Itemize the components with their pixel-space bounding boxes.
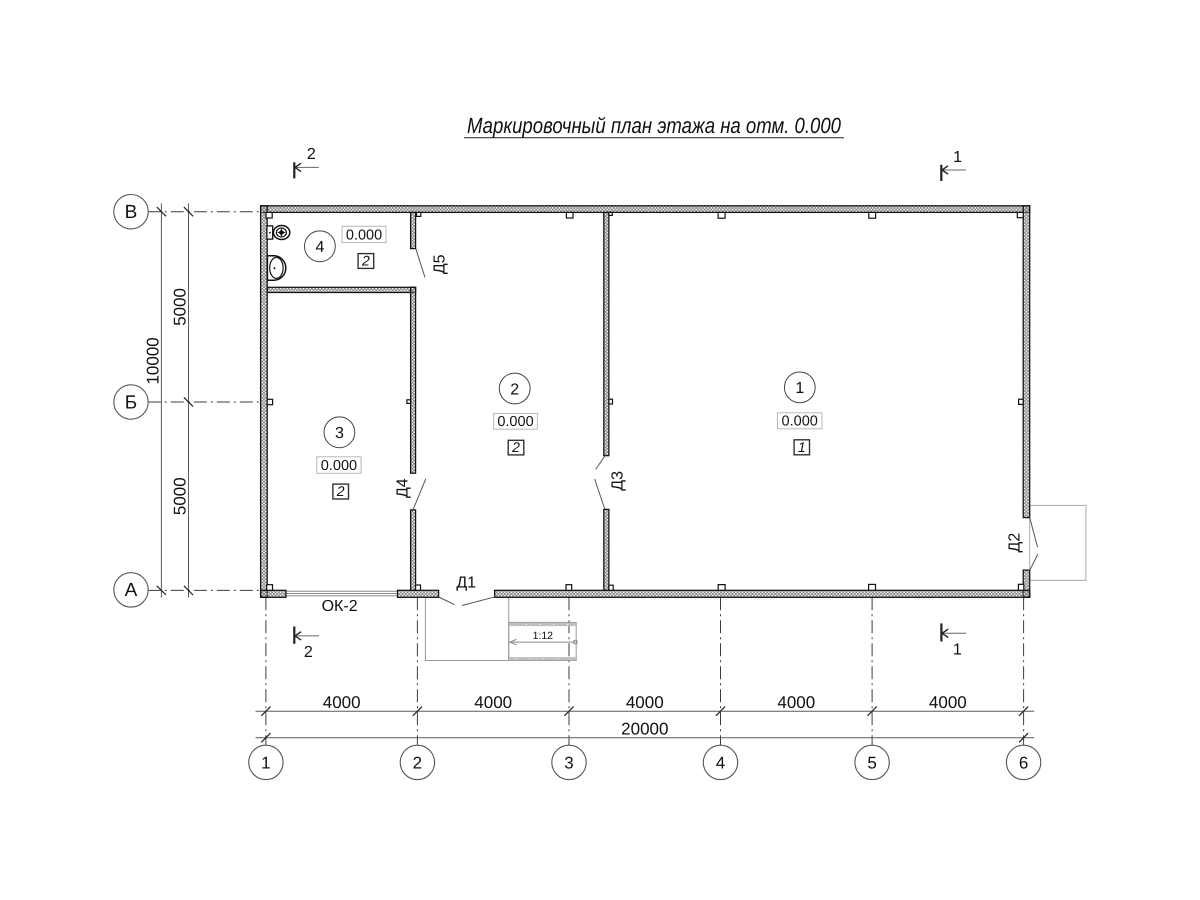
- svg-text:0.000: 0.000: [782, 414, 818, 430]
- svg-text:1: 1: [798, 439, 806, 455]
- svg-text:2: 2: [336, 483, 345, 499]
- svg-text:4000: 4000: [323, 693, 361, 712]
- svg-text:Д4: Д4: [395, 478, 412, 498]
- svg-text:2: 2: [511, 439, 520, 455]
- svg-text:2: 2: [304, 644, 313, 661]
- svg-text:4000: 4000: [777, 693, 815, 712]
- svg-text:6: 6: [1019, 753, 1028, 772]
- svg-text:3: 3: [564, 753, 573, 772]
- svg-text:В: В: [125, 202, 138, 223]
- svg-text:10000: 10000: [143, 337, 162, 384]
- svg-text:ОК-2: ОК-2: [322, 598, 358, 615]
- svg-text:4000: 4000: [929, 693, 967, 712]
- svg-text:5: 5: [867, 753, 876, 772]
- svg-text:4000: 4000: [626, 693, 664, 712]
- svg-text:4: 4: [716, 753, 725, 772]
- svg-text:1: 1: [953, 149, 962, 166]
- svg-text:5000: 5000: [170, 288, 189, 326]
- svg-text:0.000: 0.000: [497, 414, 533, 430]
- svg-text:0.000: 0.000: [346, 227, 382, 243]
- svg-text:2: 2: [307, 146, 316, 163]
- svg-text:5000: 5000: [170, 477, 189, 515]
- svg-text:0.000: 0.000: [321, 458, 357, 474]
- svg-text:2: 2: [361, 252, 370, 268]
- svg-text:1: 1: [261, 753, 270, 772]
- svg-text:20000: 20000: [621, 720, 668, 739]
- svg-text:А: А: [125, 580, 138, 601]
- svg-text:4: 4: [315, 239, 324, 256]
- svg-text:1:12: 1:12: [533, 630, 554, 642]
- svg-text:Д3: Д3: [610, 471, 627, 491]
- svg-text:Маркировочный план этажа на от: Маркировочный план этажа на отм. 0.000: [467, 113, 842, 138]
- svg-text:4000: 4000: [474, 693, 512, 712]
- svg-text:1: 1: [953, 642, 962, 659]
- svg-text:2: 2: [413, 753, 422, 772]
- svg-text:Д2: Д2: [1007, 533, 1024, 553]
- svg-text:2: 2: [510, 381, 519, 398]
- svg-text:Б: Б: [125, 392, 137, 413]
- svg-text:1: 1: [795, 380, 804, 397]
- svg-text:3: 3: [335, 425, 344, 442]
- svg-text:Д1: Д1: [456, 574, 476, 591]
- svg-text:Д5: Д5: [432, 254, 449, 274]
